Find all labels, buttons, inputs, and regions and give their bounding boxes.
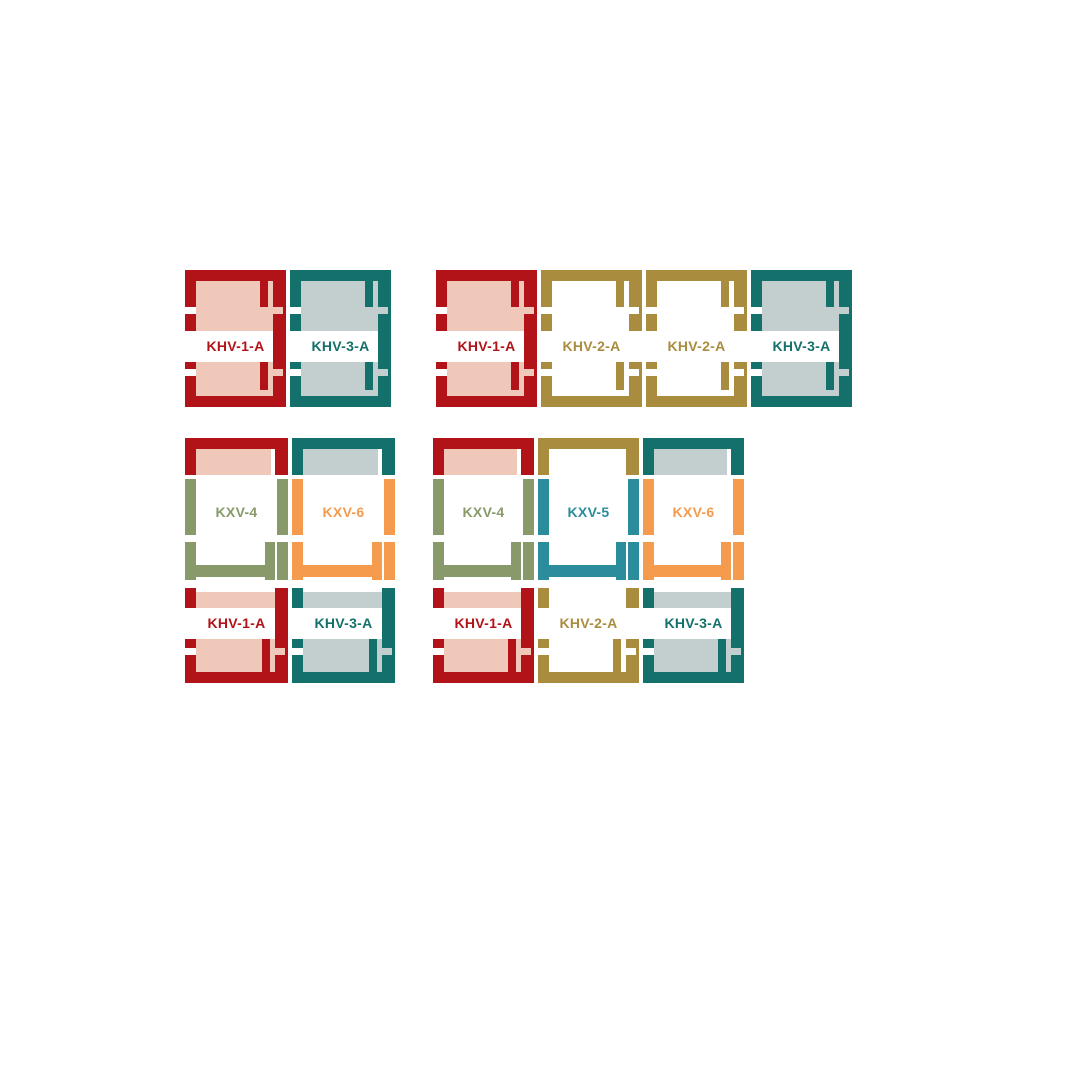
frame-bottom-bar: [185, 396, 286, 407]
side-bar-right-lower: [277, 542, 288, 580]
frame-bottom-bar: [541, 396, 642, 407]
head-top-bar: [185, 438, 288, 449]
unit-label: KHV-3-A: [292, 608, 395, 639]
head-fill: [303, 449, 378, 475]
ibeam-right-cap: [616, 542, 626, 580]
unit-label: KHV-1-A: [185, 331, 286, 362]
unit-label: KHV-1-A: [185, 608, 288, 639]
flashing-unit-khv-3-a: KHV-3-A: [290, 270, 391, 407]
left-bar-notch: [646, 307, 657, 314]
head-top-bar: [292, 438, 395, 449]
overlap-tab-top-right: [260, 281, 268, 307]
left-bar-notch: [290, 307, 301, 314]
right-bar-notch: [839, 369, 849, 376]
overlap-tab-bottom-right: [508, 639, 516, 675]
left-bar-notch: [541, 369, 552, 376]
flashing-combination-1x4: KHV-1-AKHV-2-AKHV-2-AKHV-3-A: [436, 270, 852, 407]
unit-label: KHV-3-A: [751, 331, 852, 362]
overlap-tab-bottom-right: [365, 362, 373, 390]
flashing-combination-2x2: KXV-4KHV-1-AKXV-6KHV-3-A: [185, 438, 395, 683]
right-bar-notch: [273, 369, 283, 376]
side-bar-right-lower: [523, 542, 534, 580]
left-bar-notch: [541, 307, 552, 314]
side-bar-left-lower: [433, 542, 444, 580]
frame-bottom-bar: [292, 672, 395, 683]
flashing-combination-2x3: KXV-4KHV-1-AKXV-5KHV-2-AKXV-6KHV-3-A: [433, 438, 744, 683]
head-right-stub: [382, 438, 395, 475]
frame-top-bar: [436, 270, 537, 281]
overlap-tab-top-right: [826, 281, 834, 307]
side-bar-left-lower: [643, 542, 654, 580]
head-top-bar: [538, 438, 639, 449]
unit-label: KHV-3-A: [643, 608, 744, 639]
side-bar-right-lower: [384, 542, 395, 580]
ibeam-horizontal-bar: [444, 565, 512, 577]
head-right-stub: [521, 438, 534, 475]
overlap-tab-top-right: [365, 281, 373, 307]
frame-bottom-bar: [646, 396, 747, 407]
left-bar-notch: [751, 307, 762, 314]
flashing-unit-khv-1-a: KHV-1-A: [433, 588, 534, 683]
ibeam-horizontal-bar: [654, 565, 722, 577]
ibeam-right-cap: [721, 542, 731, 580]
head-left-stub: [292, 449, 303, 475]
overlap-tab-bottom-right: [511, 362, 519, 390]
right-bar-notch: [524, 369, 534, 376]
left-bar-notch: [436, 369, 447, 376]
head-flashing-strip: [643, 438, 744, 475]
flashing-unit-kxv-4: KXV-4: [185, 479, 288, 583]
unit-label: KHV-2-A: [541, 331, 642, 362]
frame-bottom-bar: [433, 672, 534, 683]
ibeam-right-cap: [511, 542, 521, 580]
unit-label: KHV-1-A: [436, 331, 537, 362]
unit-label: KHV-2-A: [646, 331, 747, 362]
flashing-unit-khv-3-a: KHV-3-A: [643, 588, 744, 683]
flashing-unit-khv-2-a: KHV-2-A: [646, 270, 747, 407]
overlap-tab-bottom-right: [721, 362, 729, 390]
frame-bottom-bar: [436, 396, 537, 407]
unit-label: KXV-5: [538, 503, 639, 521]
unit-label: KHV-2-A: [538, 608, 639, 639]
frame-top-bar: [290, 270, 391, 281]
flashing-diagram-canvas: KHV-1-AKHV-3-AKHV-1-AKHV-2-AKHV-2-AKHV-3…: [0, 0, 1066, 1066]
head-right-stub: [731, 438, 744, 475]
frame-bottom-bar: [643, 672, 744, 683]
left-bar-notch: [290, 369, 301, 376]
overlap-tab-bottom-right: [718, 639, 726, 675]
unit-label: KXV-6: [643, 503, 744, 521]
left-bar-notch: [436, 307, 447, 314]
frame-bottom-bar: [751, 396, 852, 407]
side-bar-left-lower: [538, 542, 549, 580]
overlap-tab-bottom-right: [260, 362, 268, 390]
head-right-stub: [626, 438, 639, 475]
side-bar-right-lower: [628, 542, 639, 580]
flashing-unit-khv-1-a: KHV-1-A: [436, 270, 537, 407]
frame-top-bar: [751, 270, 852, 281]
flashing-unit-khv-2-a: KHV-2-A: [541, 270, 642, 407]
overlap-tab-bottom-right: [262, 639, 270, 675]
right-bar-notch: [273, 307, 283, 314]
frame-top-bar: [185, 270, 286, 281]
unit-label: KXV-4: [433, 503, 534, 521]
head-fill: [549, 449, 622, 475]
flashing-unit-khv-1-a: KHV-1-A: [185, 588, 288, 683]
left-bar-notch: [292, 648, 303, 655]
overlap-tab-top-right: [616, 281, 624, 307]
overlap-tab-bottom-right: [613, 639, 621, 675]
head-left-stub: [538, 449, 549, 475]
side-bar-left-lower: [292, 542, 303, 580]
head-flashing-strip: [292, 438, 395, 475]
frame-bottom-bar: [185, 672, 288, 683]
left-bar-notch: [433, 648, 444, 655]
side-bar-left-lower: [185, 542, 196, 580]
left-bar-notch: [185, 648, 196, 655]
head-fill: [654, 449, 727, 475]
head-top-bar: [433, 438, 534, 449]
right-bar-notch: [524, 307, 534, 314]
flashing-unit-khv-3-a: KHV-3-A: [292, 588, 395, 683]
unit-label: KHV-1-A: [433, 608, 534, 639]
head-fill: [196, 449, 271, 475]
flashing-unit-kxv-6: KXV-6: [292, 479, 395, 583]
right-bar-notch: [382, 648, 392, 655]
unit-label: KXV-4: [185, 503, 288, 521]
flashing-unit-khv-2-a: KHV-2-A: [538, 588, 639, 683]
ibeam-right-cap: [372, 542, 382, 580]
left-bar-notch: [751, 369, 762, 376]
flashing-unit-khv-1-a: KHV-1-A: [185, 270, 286, 407]
side-bar-right-lower: [733, 542, 744, 580]
left-bar-notch: [643, 648, 654, 655]
flashing-unit-khv-3-a: KHV-3-A: [751, 270, 852, 407]
frame-bottom-bar: [290, 396, 391, 407]
right-bar-notch: [734, 369, 744, 376]
right-bar-notch: [629, 307, 639, 314]
head-flashing-strip: [185, 438, 288, 475]
head-right-stub: [275, 438, 288, 475]
head-left-stub: [643, 449, 654, 475]
overlap-tab-bottom-right: [826, 362, 834, 390]
right-bar-notch: [275, 648, 285, 655]
right-bar-notch: [839, 307, 849, 314]
right-bar-notch: [629, 369, 639, 376]
overlap-tab-bottom-right: [369, 639, 377, 675]
frame-bottom-bar: [538, 672, 639, 683]
head-left-stub: [185, 449, 196, 475]
overlap-tab-top-right: [511, 281, 519, 307]
unit-label: KHV-3-A: [290, 331, 391, 362]
ibeam-right-cap: [265, 542, 275, 580]
head-left-stub: [433, 449, 444, 475]
left-bar-notch: [185, 307, 196, 314]
right-bar-notch: [731, 648, 741, 655]
head-flashing-strip: [433, 438, 534, 475]
ibeam-horizontal-bar: [303, 565, 373, 577]
overlap-tab-top-right: [721, 281, 729, 307]
flashing-unit-kxv-6: KXV-6: [643, 479, 744, 583]
unit-label: KXV-6: [292, 503, 395, 521]
right-bar-notch: [378, 307, 388, 314]
flashing-unit-kxv-4: KXV-4: [433, 479, 534, 583]
flashing-unit-kxv-5: KXV-5: [538, 479, 639, 583]
frame-top-bar: [541, 270, 642, 281]
overlap-tab-bottom-right: [616, 362, 624, 390]
left-bar-notch: [646, 369, 657, 376]
head-fill: [444, 449, 517, 475]
head-flashing-strip: [538, 438, 639, 475]
left-bar-notch: [185, 369, 196, 376]
ibeam-horizontal-bar: [549, 565, 617, 577]
frame-top-bar: [646, 270, 747, 281]
ibeam-horizontal-bar: [196, 565, 266, 577]
head-top-bar: [643, 438, 744, 449]
flashing-combination-1x2: KHV-1-AKHV-3-A: [185, 270, 391, 407]
right-bar-notch: [521, 648, 531, 655]
right-bar-notch: [378, 369, 388, 376]
left-bar-notch: [538, 648, 549, 655]
right-bar-notch: [734, 307, 744, 314]
right-bar-notch: [626, 648, 636, 655]
